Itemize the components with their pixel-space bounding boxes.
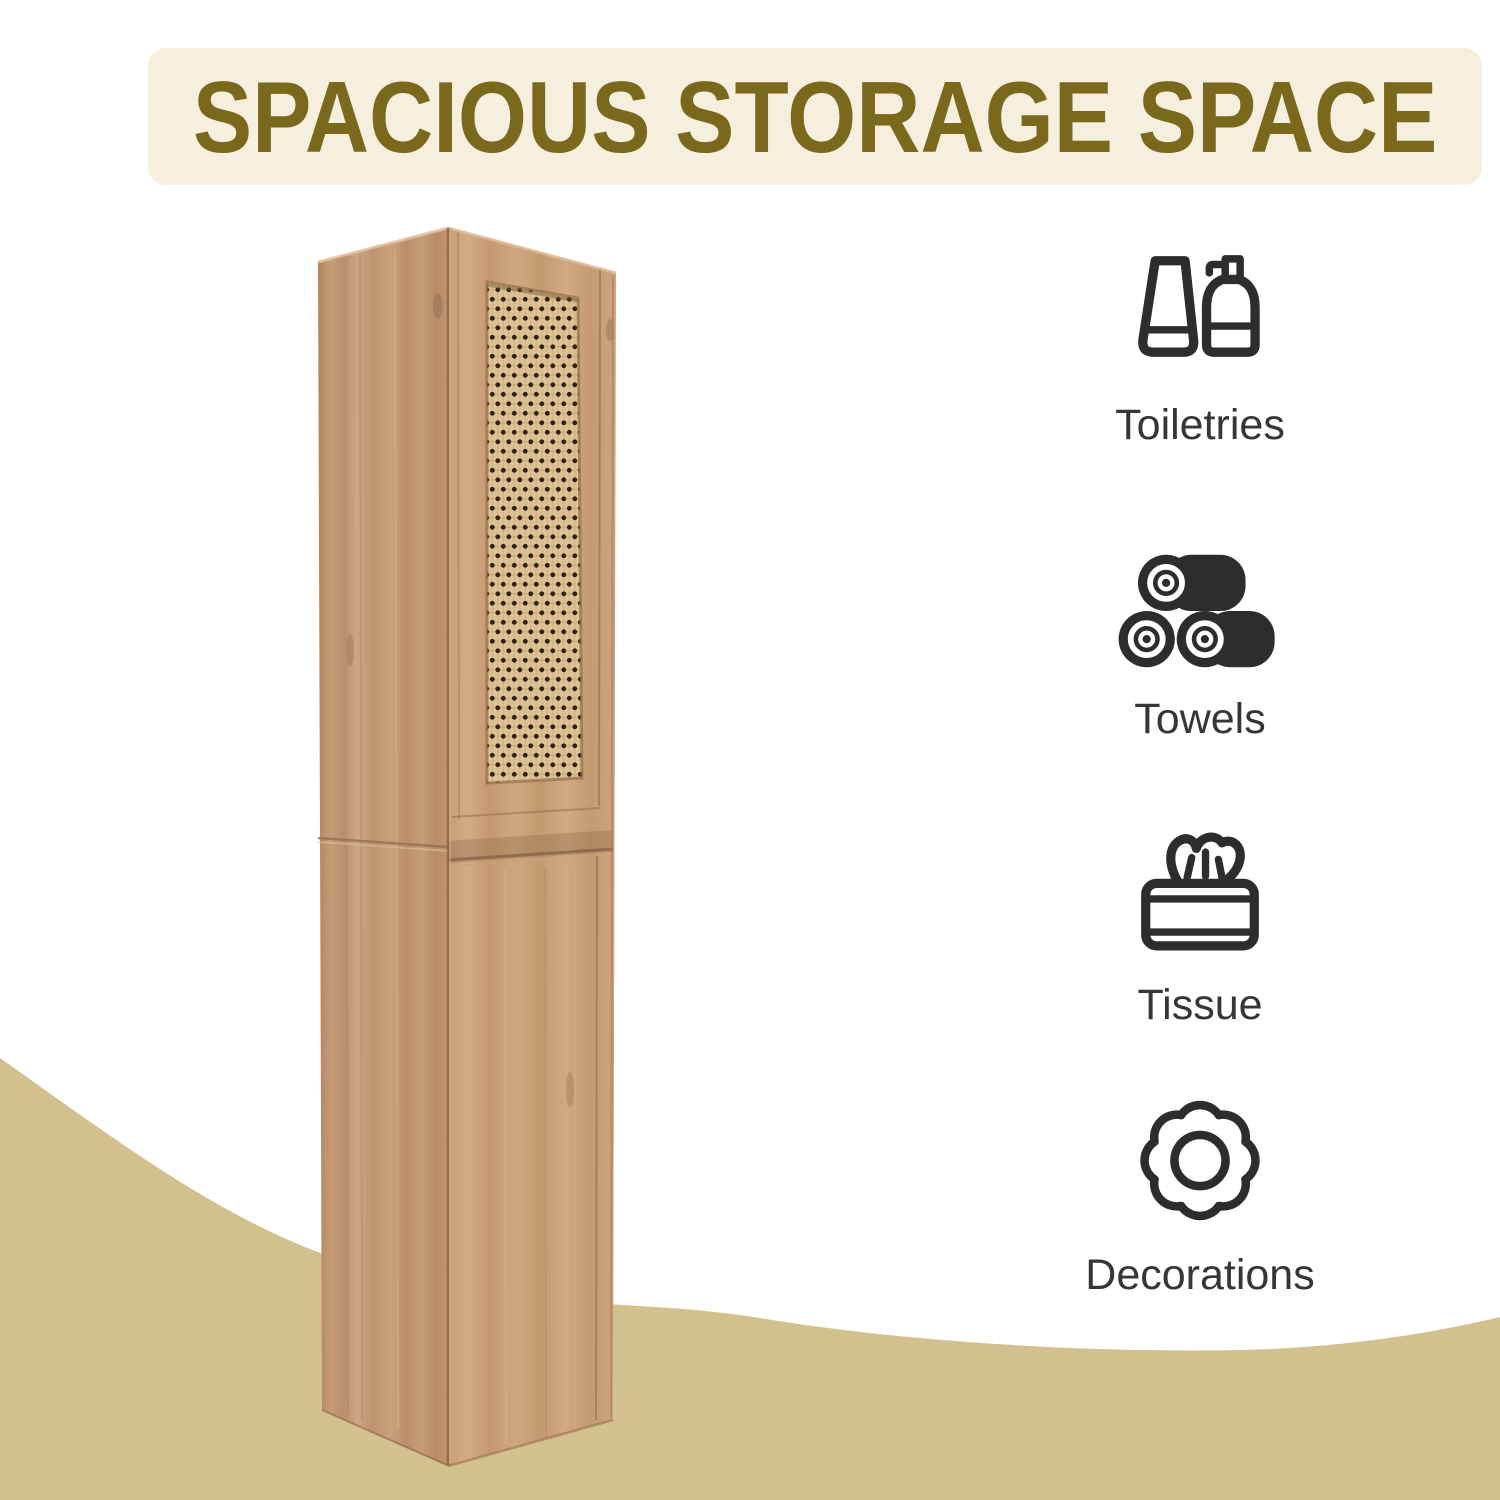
feature-decorations: Decorations: [1020, 1092, 1380, 1299]
feature-towels: Towels: [1020, 548, 1380, 743]
cabinet-front-panel: [448, 228, 616, 1466]
feature-label: Toiletries: [1115, 402, 1285, 449]
feature-label: Tissue: [1137, 982, 1262, 1029]
rattan-panel: [487, 282, 582, 783]
feature-label: Towels: [1134, 696, 1265, 743]
product-infographic: SPACIOUS STORAGE SPACE Toiletries Towels: [0, 0, 1500, 1500]
feature-toiletries: Toiletries: [1020, 246, 1380, 449]
feature-tissue: Tissue: [1020, 826, 1380, 1029]
decorations-icon: [1129, 1092, 1271, 1230]
towels-icon: [1116, 548, 1284, 674]
feature-label: Decorations: [1085, 1252, 1314, 1299]
tissue-icon: [1131, 826, 1269, 960]
title-banner: SPACIOUS STORAGE SPACE: [148, 48, 1482, 185]
cabinet-side-panel: [318, 228, 448, 1466]
toiletries-icon: [1130, 246, 1270, 380]
page-title: SPACIOUS STORAGE SPACE: [193, 64, 1438, 169]
